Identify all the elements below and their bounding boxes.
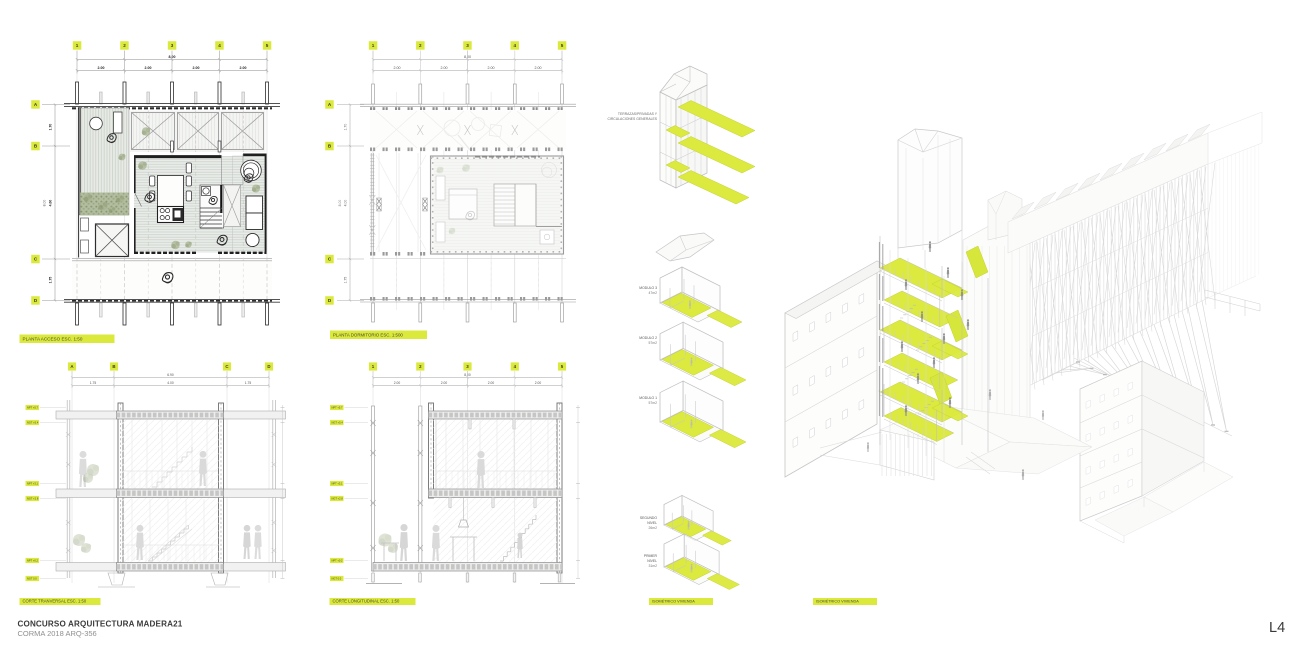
- svg-text:CORTE TRANVERSAL ESC. 1:50: CORTE TRANVERSAL ESC. 1:50: [23, 599, 87, 604]
- svg-text:47m2: 47m2: [649, 291, 658, 295]
- svg-text:CORTE LONGITUDINAL ESC. 1:50: CORTE LONGITUDINAL ESC. 1:50: [333, 599, 400, 604]
- svg-text:1: 1: [76, 43, 79, 48]
- svg-text:CIRCULACIONES GENERALES: CIRCULACIONES GENERALES: [607, 117, 657, 121]
- svg-text:NGT +5.4: NGT +5.4: [27, 421, 39, 425]
- svg-text:2.00: 2.00: [145, 66, 152, 70]
- svg-text:1: 1: [372, 43, 375, 48]
- svg-text:2: 2: [419, 43, 422, 48]
- svg-text:4: 4: [514, 43, 517, 48]
- svg-text:MODULO 1: MODULO 1: [639, 396, 657, 400]
- svg-text:NGT +2.8: NGT +2.8: [332, 497, 344, 501]
- svg-text:5: 5: [561, 43, 564, 48]
- svg-text:B: B: [112, 364, 115, 369]
- svg-text:4.00: 4.00: [49, 200, 53, 207]
- svg-text:2.00: 2.00: [535, 66, 542, 70]
- svg-text:2.00: 2.00: [98, 66, 105, 70]
- svg-text:2.00: 2.00: [193, 66, 200, 70]
- svg-text:NIVEL: NIVEL: [647, 559, 657, 563]
- svg-text:57m2: 57m2: [649, 341, 658, 345]
- svg-text:2: 2: [123, 43, 126, 48]
- svg-text:NPT +5.7: NPT +5.7: [332, 406, 344, 410]
- svg-text:1.75: 1.75: [245, 381, 252, 385]
- svg-text:ISOMÉTRICO VIVIENDA: ISOMÉTRICO VIVIENDA: [816, 599, 859, 604]
- svg-text:PRIMER: PRIMER: [644, 554, 658, 558]
- svg-text:31m2: 31m2: [649, 564, 658, 568]
- svg-text:2.00: 2.00: [394, 66, 401, 70]
- svg-text:2.00: 2.00: [488, 381, 495, 385]
- svg-text:4: 4: [218, 43, 221, 48]
- svg-text:2.00: 2.00: [488, 66, 495, 70]
- svg-text:SEGUNDO: SEGUNDO: [640, 516, 658, 520]
- svg-text:1.70: 1.70: [49, 124, 53, 131]
- svg-text:2.00: 2.00: [441, 381, 448, 385]
- svg-text:2.00: 2.00: [394, 381, 401, 385]
- svg-text:NGT 0.0: NGT 0.0: [27, 577, 37, 581]
- svg-text:1.70: 1.70: [344, 124, 348, 131]
- svg-text:57m2: 57m2: [649, 401, 658, 405]
- svg-text:1.75: 1.75: [49, 277, 53, 284]
- svg-text:NPT +5.7: NPT +5.7: [27, 406, 39, 410]
- svg-text:3: 3: [171, 43, 174, 48]
- svg-text:CORMA 2018 ARQ-356: CORMA 2018 ARQ-356: [18, 629, 97, 638]
- svg-text:NPT +3.1: NPT +3.1: [27, 482, 39, 486]
- svg-text:L4: L4: [1269, 620, 1285, 636]
- svg-text:6.90: 6.90: [167, 373, 174, 377]
- svg-text:26m2: 26m2: [649, 526, 658, 530]
- svg-text:2.00: 2.00: [240, 66, 247, 70]
- svg-text:NPT +0.2: NPT +0.2: [332, 559, 344, 563]
- svg-text:CONCURSO ARQUITECTURA MADERA21: CONCURSO ARQUITECTURA MADERA21: [18, 620, 183, 629]
- svg-text:NIVEL: NIVEL: [647, 521, 657, 525]
- svg-text:TERRAZAS/PRIVADAS Y: TERRAZAS/PRIVADAS Y: [618, 112, 658, 116]
- svg-text:5: 5: [266, 43, 269, 48]
- svg-text:NPT +0.2: NPT +0.2: [27, 559, 39, 563]
- svg-text:ISOMÉTRICO VIVIENDA: ISOMÉTRICO VIVIENDA: [652, 599, 695, 604]
- svg-text:2.00: 2.00: [441, 66, 448, 70]
- svg-text:NGT +5.4: NGT +5.4: [332, 421, 344, 425]
- svg-text:3: 3: [466, 43, 469, 48]
- svg-text:PLANTA ACCESO ESC. 1:50: PLANTA ACCESO ESC. 1:50: [23, 337, 83, 342]
- svg-text:8.00: 8.00: [338, 200, 342, 207]
- svg-text:8.00: 8.00: [43, 200, 47, 207]
- svg-text:NGT +2.8: NGT +2.8: [27, 497, 39, 501]
- svg-text:4.00: 4.00: [344, 200, 348, 207]
- svg-text:2.00: 2.00: [535, 381, 542, 385]
- svg-text:1.75: 1.75: [344, 277, 348, 284]
- svg-text:D: D: [267, 364, 270, 369]
- svg-text:PLANTA DORMITORIO ESC. 1:500: PLANTA DORMITORIO ESC. 1:500: [333, 333, 403, 338]
- svg-text:4.00: 4.00: [167, 381, 174, 385]
- svg-text:NGT 0.0: NGT 0.0: [332, 577, 342, 581]
- svg-text:NPT +3.1: NPT +3.1: [332, 482, 344, 486]
- svg-text:1.75: 1.75: [90, 381, 97, 385]
- svg-text:MODULO 3: MODULO 3: [639, 286, 657, 290]
- svg-text:MODULO 2: MODULO 2: [639, 336, 657, 340]
